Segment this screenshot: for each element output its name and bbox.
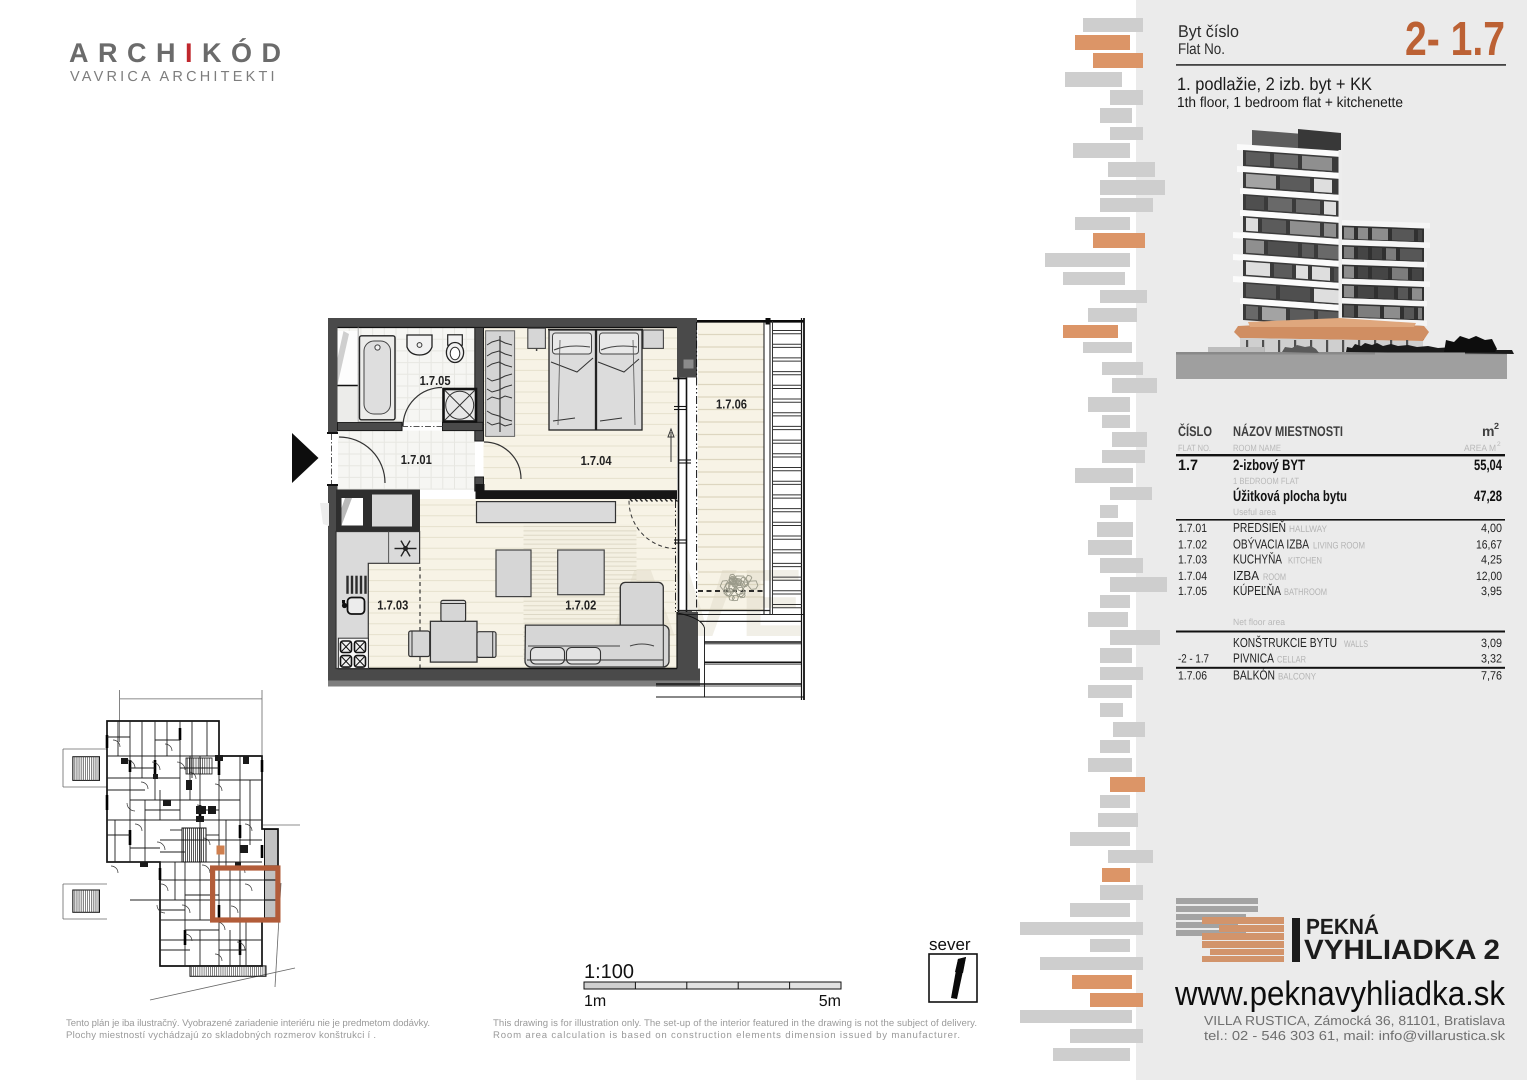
svg-text:1.7.01: 1.7.01 bbox=[1178, 521, 1207, 535]
svg-text:4,25: 4,25 bbox=[1481, 553, 1502, 567]
svg-text:LIVING ROOM: LIVING ROOM bbox=[1313, 540, 1365, 551]
svg-text:m: m bbox=[1482, 423, 1494, 439]
svg-text:2: 2 bbox=[1497, 441, 1501, 448]
svg-text:-2 - 1.7: -2 - 1.7 bbox=[1178, 652, 1209, 666]
svg-text:3,95: 3,95 bbox=[1481, 584, 1502, 598]
svg-text:1.7.03: 1.7.03 bbox=[377, 598, 408, 613]
svg-text:PIVNICA: PIVNICA bbox=[1233, 651, 1274, 666]
svg-text:1.7.05: 1.7.05 bbox=[1178, 584, 1207, 598]
svg-text:1m: 1m bbox=[584, 993, 606, 1010]
svg-text:1 BEDROOM FLAT: 1 BEDROOM FLAT bbox=[1233, 476, 1299, 486]
svg-text:Byt číslo: Byt číslo bbox=[1178, 22, 1239, 41]
svg-text:Úžitková plocha bytu: Úžitková plocha bytu bbox=[1233, 487, 1347, 505]
svg-text:KONŠTRUKCIE BYTU: KONŠTRUKCIE BYTU bbox=[1233, 635, 1337, 650]
svg-text:ČÍSLO: ČÍSLO bbox=[1178, 423, 1212, 439]
svg-text:BATHROOM: BATHROOM bbox=[1284, 587, 1327, 598]
svg-text:Room area calculation is based: Room area calculation is based on constr… bbox=[493, 1030, 960, 1041]
svg-text:BALKÓN: BALKÓN bbox=[1233, 667, 1275, 682]
svg-text:2- 1.7: 2- 1.7 bbox=[1405, 13, 1505, 66]
svg-text:1.7.01: 1.7.01 bbox=[401, 452, 432, 467]
svg-text:5m: 5m bbox=[819, 993, 841, 1010]
svg-text:1.7.04: 1.7.04 bbox=[581, 453, 613, 468]
svg-text:VILLA RUSTICA, Zámocká 36, 811: VILLA RUSTICA, Zámocká 36, 81101, Bratis… bbox=[1204, 1013, 1506, 1028]
svg-text:1.7.03: 1.7.03 bbox=[1178, 553, 1207, 567]
svg-text:PREDSIEŇ: PREDSIEŇ bbox=[1233, 520, 1286, 535]
svg-text:1.7.06: 1.7.06 bbox=[1178, 668, 1207, 682]
svg-text:12,00: 12,00 bbox=[1476, 569, 1502, 583]
svg-text:AREA M: AREA M bbox=[1464, 443, 1496, 453]
svg-text:OBÝVACIA IZBA: OBÝVACIA IZBA bbox=[1233, 536, 1309, 551]
svg-text:16,67: 16,67 bbox=[1476, 537, 1502, 551]
svg-text:2: 2 bbox=[1494, 421, 1499, 431]
svg-text:KÚPEĽŇA: KÚPEĽŇA bbox=[1233, 583, 1281, 598]
svg-text:Tento plán je iba ilustračný.: Tento plán je iba ilustračný. Vyobrazené… bbox=[66, 1018, 430, 1029]
svg-text:Plochy miestností vychádzajú z: Plochy miestností vychádzajú zo skladobn… bbox=[66, 1030, 376, 1041]
svg-text:55,04: 55,04 bbox=[1474, 457, 1502, 474]
svg-text:KITCHEN: KITCHEN bbox=[1288, 556, 1322, 567]
svg-text:VAVRICA ARCHITEKTI: VAVRICA ARCHITEKTI bbox=[70, 69, 278, 85]
svg-text:www.peknavyhliadka.sk: www.peknavyhliadka.sk bbox=[1174, 975, 1506, 1013]
svg-text:CELLAR: CELLAR bbox=[1277, 655, 1306, 666]
svg-text:tel.: 02 - 546 303 61, mail: i: tel.: 02 - 546 303 61, mail: info@villar… bbox=[1204, 1028, 1506, 1043]
svg-text:1th floor, 1 bedroom flat + ki: 1th floor, 1 bedroom flat + kitchenette bbox=[1177, 95, 1403, 111]
svg-text:1.7.05: 1.7.05 bbox=[420, 373, 451, 388]
svg-text:1.7.04: 1.7.04 bbox=[1178, 569, 1207, 583]
svg-text:KUCHYŇA: KUCHYŇA bbox=[1233, 552, 1282, 567]
svg-text:3,32: 3,32 bbox=[1481, 652, 1502, 666]
svg-text:FLAT NO.: FLAT NO. bbox=[1178, 443, 1211, 453]
svg-text:4,00: 4,00 bbox=[1481, 521, 1502, 535]
svg-text:1.7.02: 1.7.02 bbox=[1178, 537, 1207, 551]
svg-text:sever: sever bbox=[929, 935, 971, 954]
svg-text:1.7.06: 1.7.06 bbox=[716, 397, 747, 412]
svg-text:VYHLIADKA 2: VYHLIADKA 2 bbox=[1304, 934, 1500, 965]
svg-text:2-izbový BYT: 2-izbový BYT bbox=[1233, 457, 1305, 474]
svg-text:47,28: 47,28 bbox=[1474, 488, 1502, 505]
svg-text:1. podlažie, 2 izb. byt + KK: 1. podlažie, 2 izb. byt + KK bbox=[1177, 74, 1372, 94]
svg-text:Flat No.: Flat No. bbox=[1178, 41, 1225, 58]
svg-text:Useful area: Useful area bbox=[1233, 507, 1276, 517]
svg-text:3,09: 3,09 bbox=[1481, 636, 1502, 650]
svg-text:7,76: 7,76 bbox=[1481, 668, 1502, 682]
svg-text:ROOM: ROOM bbox=[1263, 572, 1286, 583]
svg-text:HALLWAY: HALLWAY bbox=[1289, 524, 1328, 535]
svg-text:1.7: 1.7 bbox=[1178, 457, 1198, 474]
svg-text:1.7.02: 1.7.02 bbox=[565, 598, 596, 613]
svg-text:IZBA: IZBA bbox=[1233, 568, 1259, 583]
svg-text:ROOM NAME: ROOM NAME bbox=[1233, 443, 1281, 453]
svg-text:ARCHIKÓD: ARCHIKÓD bbox=[69, 38, 291, 68]
svg-text:This drawing is for illustrati: This drawing is for illustration only. T… bbox=[493, 1018, 977, 1029]
svg-text:BALCONY: BALCONY bbox=[1278, 671, 1317, 682]
svg-text:NÁZOV MIESTNOSTI: NÁZOV MIESTNOSTI bbox=[1233, 423, 1343, 439]
svg-text:WALLS: WALLS bbox=[1344, 639, 1368, 650]
svg-text:Net floor area: Net floor area bbox=[1233, 617, 1285, 627]
svg-text:1:100: 1:100 bbox=[584, 961, 634, 983]
